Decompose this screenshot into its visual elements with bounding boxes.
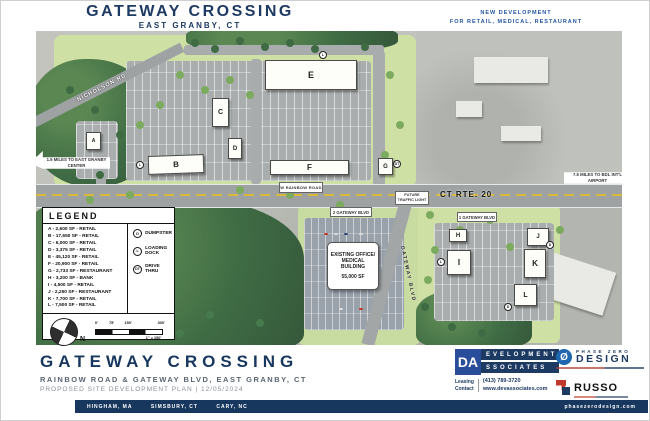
- existing-building-name: EXISTING OFFICE/ MEDICAL BUILDING: [330, 252, 376, 271]
- phase-zero-word2: DESIGN: [576, 354, 631, 365]
- legend-item: G - 2,733 SF - RESTAURANT: [48, 269, 125, 276]
- legend-symbol-drive-thru: DT DRIVE THRU: [133, 264, 172, 274]
- dumpster-marker: D: [546, 241, 554, 249]
- existing-area-northeast: [416, 31, 622, 184]
- dumpster-symbol-label: DUMPSTER: [145, 231, 172, 236]
- leasing-website: www.devassociates.com: [483, 386, 548, 394]
- legend-body: A - 2,600 SF - RETAIL B - 17,650 SF - RE…: [43, 224, 174, 314]
- building-b: B: [148, 154, 205, 175]
- loading-dock-marker: L: [437, 258, 445, 266]
- traffic-light-line2: TRAFFIC LIGHT: [398, 198, 427, 203]
- building-d: D: [228, 138, 242, 159]
- legend-items: A - 2,600 SF - RETAIL B - 17,650 SF - RE…: [43, 224, 128, 313]
- legend-item: J - 2,250 SF - RESTAURANT: [48, 290, 125, 297]
- legend: LEGEND A - 2,600 SF - RETAIL B - 17,650 …: [42, 207, 175, 340]
- legend-item: I - 4,500 SF - RETAIL: [48, 283, 125, 290]
- scale-tick: 300': [158, 321, 165, 325]
- footer-project-title: GATEWAY CROSSING: [40, 352, 298, 372]
- dumpster-marker: D: [504, 303, 512, 311]
- driveway: [184, 45, 384, 55]
- legend-footer: N 0' 75' 150' 300' 1" = 150': [43, 314, 174, 350]
- development-associates-logo: DA EVELOPMENT SSOCIATES Leasing Contact …: [455, 349, 559, 393]
- legend-item: C - 6,000 SF - RETAIL: [48, 241, 125, 248]
- da-wordmark-bars: EVELOPMENT SSOCIATES: [479, 349, 559, 373]
- scale-tick: 75': [109, 321, 114, 325]
- tagline-line2: FOR RETAIL, MEDICAL, RESTAURANT: [446, 18, 586, 27]
- loading-dock-marker: L: [319, 51, 327, 59]
- leasing-contact-details: (413) 789-3720 www.devassociates.com: [479, 378, 548, 393]
- scale-bar-graphic: [95, 329, 163, 335]
- legend-item: L - 7,500 SF - RETAIL: [48, 303, 125, 310]
- route-20-road: [36, 184, 622, 208]
- drive-thru-marker: DT: [393, 160, 401, 168]
- legend-symbol-loading-dock: L LOADING DOCK: [133, 246, 172, 256]
- da-word-associates: SSOCIATES: [479, 362, 559, 373]
- russo-mark-blue-shape: [562, 387, 570, 395]
- russo-tagline-rule: [574, 396, 628, 398]
- da-monogram-icon: DA: [455, 349, 481, 375]
- legend-item: F - 20,900 SF - RETAIL: [48, 262, 125, 269]
- loading-dock-symbol-label: LOADING DOCK: [145, 246, 172, 256]
- existing-building-size: 55,000 SF: [341, 274, 364, 280]
- north-compass-icon: [45, 314, 82, 351]
- loading-dock-symbol-icon: L: [133, 247, 142, 256]
- russo-mark-icon: [556, 380, 570, 395]
- scale-tick: 0': [95, 321, 98, 325]
- address-1-gateway-label: 1 GATEWAY BLVD: [457, 212, 497, 222]
- bottom-bar: HINGHAM, MA SIMSBURY, CT CARY, NC phasez…: [75, 400, 648, 413]
- future-traffic-light-label: FUTURE TRAFFIC LIGHT: [395, 191, 429, 205]
- drive-thru-symbol-label: DRIVE THRU: [145, 264, 172, 274]
- phase-zero-tagline-rule: [556, 367, 644, 369]
- office-location: CARY, NC: [216, 404, 247, 410]
- legend-symbol-dumpster: D DUMPSTER: [133, 229, 172, 238]
- airport-distance-text: 7.5 MILES TO BDL INT'L AIRPORT: [564, 172, 631, 184]
- development-tagline: NEW DEVELOPMENT FOR RETAIL, MEDICAL, RES…: [446, 9, 586, 27]
- designer-website: phasezerodesign.com: [564, 404, 636, 410]
- phase-zero-design-logo: Ø PHASE ZERO DESIGN: [556, 349, 648, 369]
- footer-address: RAINBOW ROAD & GATEWAY BLVD, EAST GRANBY…: [40, 375, 307, 384]
- dumpster-symbol-icon: D: [133, 229, 142, 238]
- building-c: C: [212, 98, 229, 127]
- building-a: A: [86, 132, 101, 150]
- phase-zero-wordmark: Ø PHASE ZERO DESIGN: [556, 349, 648, 365]
- phase-zero-circle-icon: Ø: [556, 349, 572, 365]
- office-location: SIMSBURY, CT: [151, 404, 198, 410]
- legend-item: A - 2,600 SF - RETAIL: [48, 227, 125, 234]
- office-location: HINGHAM, MA: [87, 404, 132, 410]
- da-word-development: EVELOPMENT: [479, 349, 559, 360]
- legend-item: B - 17,650 SF - RETAIL: [48, 234, 125, 241]
- building-f: F: [270, 160, 349, 175]
- trees-light: [36, 31, 44, 39]
- page-title: GATEWAY CROSSING: [40, 3, 340, 21]
- legend-item: D - 3,375 SF - RETAIL: [48, 248, 125, 255]
- legend-item: H - 3,200 SF - BANK: [48, 276, 125, 283]
- existing-building-roof: [456, 101, 482, 117]
- east-granby-distance-text: 1.5 MILES TO EAST GRANBY CENTER: [43, 157, 110, 169]
- leasing-contact-info: Leasing Contact (413) 789-3720 www.devas…: [455, 378, 559, 393]
- loading-dock-marker: L: [136, 161, 144, 169]
- existing-building-roof: [501, 126, 541, 141]
- leasing-label-line1: Leasing: [455, 379, 474, 386]
- footer-plan-line: PROPOSED SITE DEVELOPMENT PLAN | 12/05/2…: [40, 386, 244, 393]
- leasing-label-line2: Contact: [455, 386, 474, 393]
- drive-thru-symbol-icon: DT: [133, 265, 142, 274]
- existing-office-medical-building: EXISTING OFFICE/ MEDICAL BUILDING 55,000…: [327, 242, 379, 290]
- russo-name: RUSSO: [574, 382, 618, 394]
- driveway: [251, 59, 261, 184]
- building-k: K: [524, 249, 546, 278]
- address-2-gateway-label: 2 GATEWAY BLVD: [330, 207, 372, 217]
- scale-tick: 150': [125, 321, 132, 325]
- building-g: G: [378, 158, 393, 175]
- legend-item: E - 45,120 SF - RETAIL: [48, 255, 125, 262]
- road-median: [36, 194, 622, 196]
- north-label: N: [80, 336, 85, 343]
- existing-building-roof: [474, 57, 548, 83]
- rainbow-road-label: W RAINBOW ROAD: [279, 182, 323, 193]
- russo-wordmark: RUSSO: [556, 380, 648, 395]
- building-l: L: [514, 284, 537, 306]
- plan-sheet: GATEWAY CROSSING EAST GRANBY, CT NEW DEV…: [0, 0, 650, 421]
- route-20-label: CT RTE. 20: [440, 190, 492, 199]
- legend-title: LEGEND: [43, 208, 174, 224]
- leasing-phone: (413) 789-3720: [483, 378, 548, 386]
- building-e: E: [265, 60, 357, 90]
- office-locations: HINGHAM, MA SIMSBURY, CT CARY, NC: [87, 404, 264, 410]
- legend-symbols: D DUMPSTER L LOADING DOCK DT DRIVE THRU: [128, 224, 174, 313]
- scale-bar: 0' 75' 150' 300' 1" = 150': [95, 319, 167, 345]
- scale-ratio: 1" = 150': [146, 336, 161, 340]
- tagline-line1: NEW DEVELOPMENT: [446, 9, 586, 18]
- page-subtitle: EAST GRANBY, CT: [40, 21, 340, 30]
- development-associates-wordmark: DA EVELOPMENT SSOCIATES: [455, 349, 559, 375]
- building-i: I: [447, 250, 471, 275]
- leasing-contact-label: Leasing Contact: [455, 379, 479, 392]
- scale-ticks: 0' 75' 150' 300': [95, 321, 161, 327]
- russo-logo: RUSSO: [556, 380, 648, 398]
- building-h: H: [449, 229, 467, 242]
